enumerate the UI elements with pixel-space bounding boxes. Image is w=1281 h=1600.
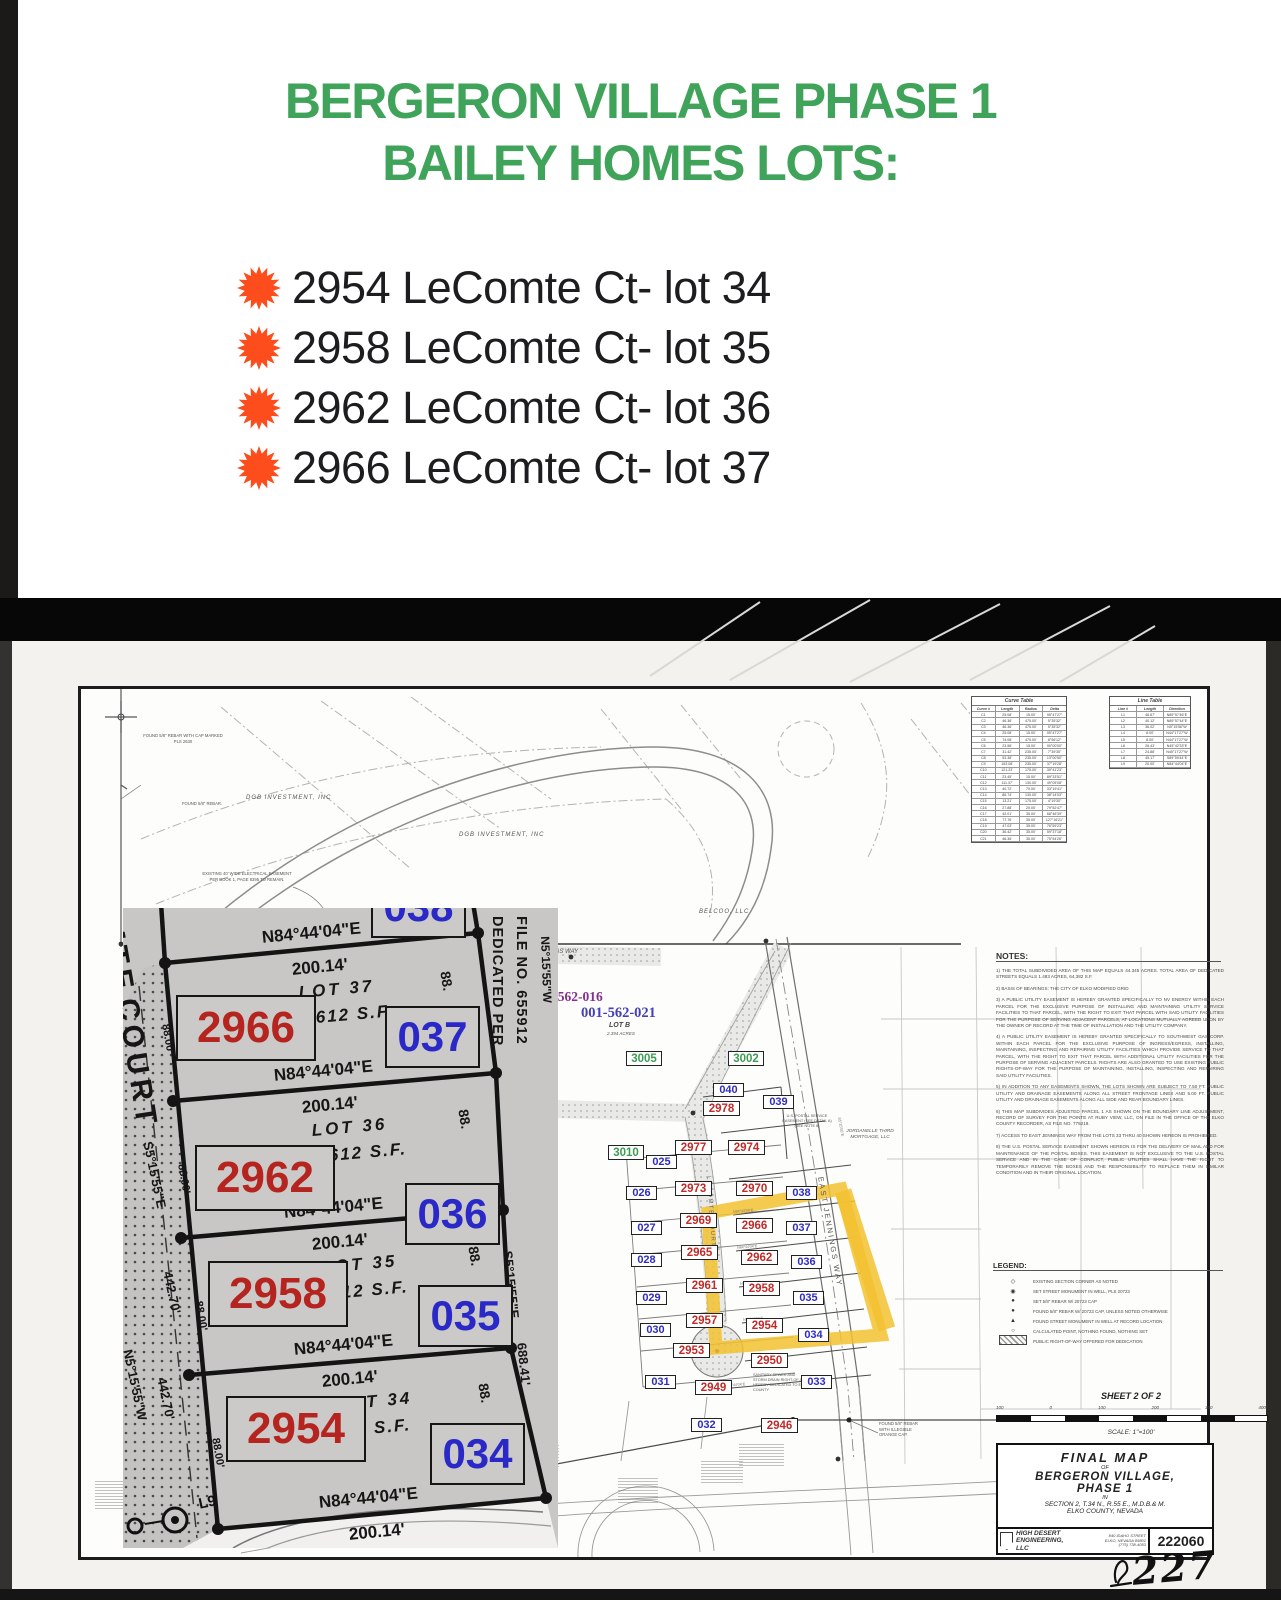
owner-label-jordanelle: JORDANELLE THIRD MORTGAGE, LLC [839,1129,901,1141]
note-item: 4) A PUBLIC UTILITY EASEMENT IS HEREBY G… [996,1034,1224,1079]
flyer-header: BERGERON VILLAGE PHASE 1 BAILEY HOMES LO… [0,0,1281,598]
address-box-red: 2957 [686,1313,723,1328]
inset-bearing-n5w-clipped: N5°15'55"W [538,936,554,1003]
lot-b-area: 2.394 ACRES [607,1031,635,1036]
legend-row: ▲ FOUND STREET MONUMENT IN WELL AT RECOR… [993,1316,1228,1326]
address-box-red: 2970 [736,1181,773,1196]
scan-hatch-lines [640,596,1160,684]
title-block: FINAL MAP OF BERGERON VILLAGE, PHASE 1 I… [996,1443,1214,1555]
lot-number-box: 039 [763,1095,794,1109]
address-box-red: 2961 [686,1278,723,1293]
address-box-red: 2950 [751,1353,788,1368]
lot-number-box: 032 [691,1418,722,1432]
flyer-list-item: 2962 LeComte Ct- lot 36 [292,382,771,434]
legend-heading: LEGEND: [993,1261,1223,1271]
owner-label-dgb-1: DGB INVESTMENT, INC [246,795,331,801]
scale-tick-labels: 1000100200300400 [996,1405,1266,1410]
curve-table-title: Curve Table [972,697,1066,706]
inset-dim-88r: 88. [455,1108,474,1130]
flyer-list-item: 2954 LeComte Ct- lot 34 [292,262,771,314]
line-table: Line Table Line # Length Direction L146.… [1109,696,1191,769]
note-item: 8) THE U.S. POSTAL SERVICE EASEMENT SHOW… [996,1144,1224,1176]
handwritten-number: 227 [1130,1542,1219,1594]
legend-section: LEGEND: ◇ EXISTING SECTION CORNER AS NOT… [993,1261,1228,1346]
lot-number-box: 031 [645,1375,676,1389]
legend-symbol-icon: ▲ [993,1318,1033,1324]
inset-address-box: 2966 [176,995,316,1061]
inset-address-box: 2958 [208,1261,348,1327]
inset-lot-number-box: 037 [385,1006,480,1068]
jordanelle-line2: MORTGAGE, LLC [850,1135,889,1140]
title-block-line1: FINAL MAP [998,1450,1212,1465]
address-box-red: 2974 [728,1140,765,1155]
hatch-swatch-icon [993,1335,1033,1347]
legend-symbol-icon: ● [993,1298,1033,1304]
lot-number-box: 038 [786,1186,817,1200]
firm-address: 840 IDAHO STREET ELKO, NEVADA 89801 (775… [1063,1534,1146,1548]
illegible-text-block [739,1444,784,1468]
curve-table-rows: C125.08' 15.00'95°47'27" C246.36' 475.00… [972,712,1066,842]
starburst-bullet-icon [237,326,281,370]
lot-number-box: 030 [640,1323,671,1337]
found-orange-cap-note: FOUND 5/8" REBAR WITH ILLEGIBLE ORANGE C… [879,1421,925,1438]
jordanelle-line1: JORDANELLE THIRD [846,1129,893,1134]
line-table-title: Line Table [1110,697,1190,706]
lot-number-box: 027 [631,1221,662,1235]
notes-heading: NOTES: [996,951,1221,962]
firm-name: HIGH DESERT ENGINEERING, LLC [1016,1530,1063,1551]
address-box-red: 2962 [741,1250,778,1265]
flyer-page: BERGERON VILLAGE PHASE 1 BAILEY HOMES LO… [0,0,1281,1600]
address-box-red: 2965 [681,1245,718,1260]
line-table-rows: L146.67' N89°57'46"E L240.12' N89°57'44"… [1110,712,1190,768]
lot-number-box: 040 [713,1083,744,1097]
line-l9-label: L9 [197,1492,218,1512]
found-rebar-note: FOUND 5/8" REBAR. [173,801,231,807]
nevada-state-icon [1000,1532,1013,1550]
legend-symbol-icon: ● [993,1308,1033,1314]
owner-label-dgb-2: DGB INVESTMENT, INC [459,832,544,838]
inset-lot-number-box: 036 [405,1183,500,1245]
dedication-label-line1: DEDICATED PER [489,916,505,1046]
table-row: C2146.36' 35.00'75°54'26" [972,836,1066,842]
legend-row: ● FOUND 5/8" REBAR W/ 20723 CAP, UNLESS … [993,1306,1228,1316]
flyer-title-line1: BERGERON VILLAGE PHASE 1 [18,72,1263,130]
legend-row: ◉ SET STREET MONUMENT IN WELL, PLS 20723 [993,1286,1228,1296]
inset-dim-88r: 88. [437,970,456,992]
title-block-line3: BERGERON VILLAGE, [998,1471,1212,1483]
sheet-number-label: SHEET 2 OF 2 [996,1391,1266,1401]
postal-easement-note: U.S. POSTAL SERVICE EASEMENT (SEE DETAIL… [781,1114,833,1129]
photo-right-edge [1266,641,1281,1600]
note-item: 2) BASIS OF BEARINGS: THE CITY OF ELKO M… [996,986,1224,992]
note-item: 6) THIS MAP SUBDIVIDES ADJUSTED PARCEL 1… [996,1109,1224,1128]
notes-section: NOTES: 1) THE TOTAL SUBDIVIDED AREA OF T… [996,951,1224,1181]
address-box-red: 2954 [746,1318,783,1333]
parcel-apn-021: 001-562-021 [581,1005,656,1022]
electrical-easement-note: EXISTING 40' WIDE ELECTRICAL EASEMENT PE… [199,871,295,882]
flyer-list-item: 2958 LeComte Ct- lot 35 [292,322,771,374]
note-item: 3) A PUBLIC UTILITY EASEMENT IS HEREBY G… [996,997,1224,1029]
legend-items: ◇ EXISTING SECTION CORNER AS NOTED ◉ SET… [993,1276,1228,1336]
scale-label: SCALE: 1"=100' [996,1429,1266,1436]
plat-map-sheet: FOUND 5/8" REBAR WITH CAP MARKED PLS 263… [78,686,1210,1560]
inset-address-box: 2962 [195,1145,335,1211]
legend-row: ● SET 5/8" REBAR W/ 20723 CAP [993,1296,1228,1306]
inset-lot-number-box: 035 [418,1285,513,1347]
starburst-bullet-icon [237,386,281,430]
curve-table: Curve Table Curve # Length Radius Delta … [971,696,1067,843]
firm-cell: HIGH DESERT ENGINEERING, LLC 840 IDAHO S… [998,1529,1150,1553]
inset-lot-number-box: 034 [430,1423,525,1485]
lot-number-box: 026 [626,1186,657,1200]
title-block-line6: SECTION 2, T.34 N., R.55 E., M.D.B.& M. [998,1501,1212,1508]
lot-number-box: 025 [646,1155,677,1169]
address-box-red: 2969 [680,1213,717,1228]
lot-number-box: 034 [798,1328,829,1342]
lot-number-box: 033 [801,1375,832,1389]
address-box-red: 2958 [743,1281,780,1296]
note-item: 7) ACCESS TO EAST JENNINGS WAY FROM THE … [996,1133,1224,1139]
lot-number-box: 036 [791,1255,822,1269]
title-block-line4: PHASE 1 [998,1483,1212,1495]
address-box-green: 3005 [626,1051,662,1066]
address-box-red: 2978 [703,1101,740,1116]
illegible-text-block [618,1478,658,1505]
illegible-text-block [701,1461,743,1485]
notes-list: 1) THE TOTAL SUBDIVIDED AREA OF THIS MAP… [996,968,1224,1176]
legend-symbol-icon: ◉ [993,1288,1033,1295]
address-box-red: 2977 [675,1140,712,1155]
inset-dim-88r: 88. [475,1382,494,1404]
table-row: L920.00' N84°44'04"E [1110,762,1190,768]
address-box-red: 2946 [761,1418,798,1433]
address-box-red: 2949 [695,1380,732,1395]
dedication-label-line2: FILE NO. 655912 [513,916,529,1045]
address-box-green: 3010 [608,1145,644,1160]
address-box-green: 3002 [728,1051,764,1066]
zoom-inset-lots: 038 MTE COURT S5°15'55"E 442.70' N5°15'5… [123,908,558,1548]
lot-number-box: 035 [793,1291,824,1305]
owner-label-belco: BELCOO, LLC [699,909,749,915]
inset-address-box: 2954 [226,1396,366,1462]
lot-number-box: 037 [786,1221,817,1235]
lot-number-box: 029 [636,1291,667,1305]
address-box-red: 2966 [736,1218,773,1233]
lot-number-box: 028 [631,1253,662,1267]
inset-dim-88r: 88. [465,1245,484,1267]
address-box-red: 2973 [675,1181,712,1196]
found-rebar-cap-note: FOUND 5/8" REBAR WITH CAP MARKED PLS 263… [143,733,223,744]
title-block-line7: ELKO COUNTY, NEVADA [998,1508,1212,1515]
photo-left-edge [0,641,12,1600]
left-black-strip [0,0,18,598]
scale-bar [996,1415,1268,1422]
note-item: 5) IN ADDITION TO ANY EASEMENTS SHOWN, T… [996,1084,1224,1103]
address-box-red: 2953 [673,1343,710,1358]
lot-number-box-clipped: 038 [371,908,466,938]
note-item: 1) THE TOTAL SUBDIVIDED AREA OF THIS MAP… [996,968,1224,981]
starburst-bullet-icon [237,446,281,490]
flyer-title-line2: BAILEY HOMES LOTS: [18,134,1263,192]
lot-b-label: LOT B [609,1022,630,1029]
legend-row: ◇ EXISTING SECTION CORNER AS NOTED [993,1276,1228,1286]
photo-bottom-edge [0,1589,1281,1600]
legend-symbol-icon: ○ [993,1328,1033,1334]
legend-symbol-icon: ◇ [993,1278,1033,1285]
legend-row-dedication: PUBLIC RIGHT-OF-WAY OFFERED FOR DEDICATI… [993,1336,1228,1346]
starburst-bullet-icon [237,266,281,310]
flyer-list-item: 2966 LeComte Ct- lot 37 [292,442,771,494]
